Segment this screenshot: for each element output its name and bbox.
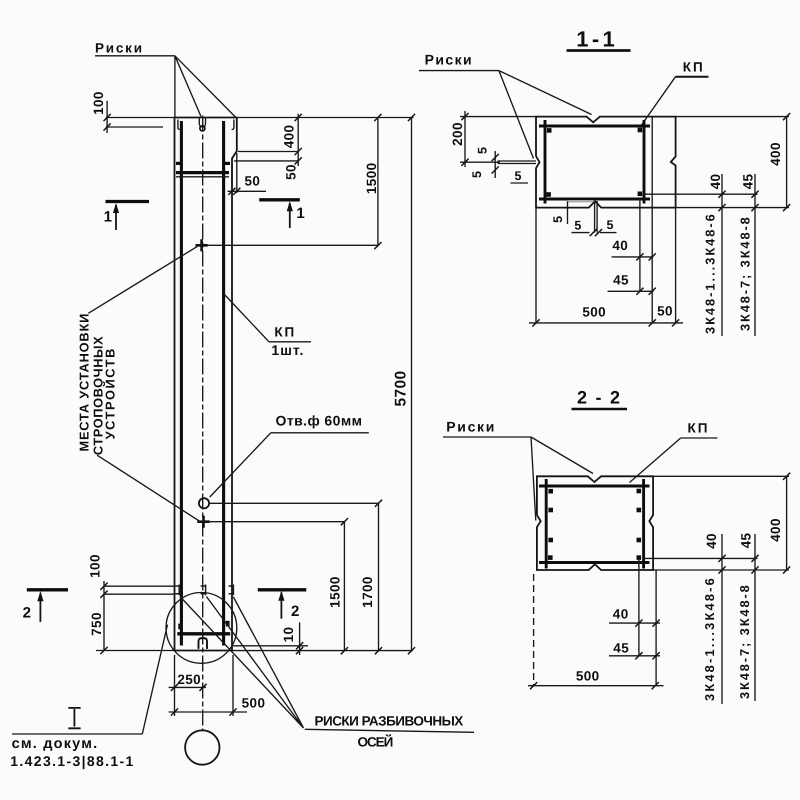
svg-text:2 - 2: 2 - 2 xyxy=(577,388,620,408)
svg-text:500: 500 xyxy=(582,305,606,320)
svg-text:КП: КП xyxy=(683,60,705,75)
svg-text:250: 250 xyxy=(177,672,201,687)
svg-text:5700: 5700 xyxy=(392,370,409,406)
svg-text:45: 45 xyxy=(739,533,754,549)
svg-text:5: 5 xyxy=(574,219,581,233)
svg-text:50: 50 xyxy=(657,304,673,319)
svg-text:5: 5 xyxy=(551,216,565,223)
svg-text:5: 5 xyxy=(607,218,614,232)
svg-text:5: 5 xyxy=(515,169,522,183)
svg-text:750: 750 xyxy=(89,612,104,636)
svg-text:1700: 1700 xyxy=(360,576,375,608)
svg-text:45: 45 xyxy=(613,640,629,655)
svg-text:50: 50 xyxy=(284,164,299,180)
svg-text:400: 400 xyxy=(282,125,297,149)
svg-text:100: 100 xyxy=(88,554,103,578)
svg-text:Риски: Риски xyxy=(425,52,472,68)
svg-text:УСТРОЙСТВ: УСТРОЙСТВ xyxy=(103,348,118,439)
svg-text:РИСКИ РАЗБИВОЧНЫХ: РИСКИ РАЗБИВОЧНЫХ xyxy=(315,714,465,729)
svg-text:Риски: Риски xyxy=(95,41,142,56)
svg-text:МЕСТА УСТАНОВКИ: МЕСТА УСТАНОВКИ xyxy=(77,314,92,452)
svg-text:2: 2 xyxy=(291,603,299,620)
svg-text:3К48-1...3К48-6: 3К48-1...3К48-6 xyxy=(703,214,718,334)
svg-text:КП: КП xyxy=(688,421,710,436)
svg-text:50: 50 xyxy=(244,173,260,188)
svg-text:400: 400 xyxy=(768,518,783,542)
svg-text:1500: 1500 xyxy=(328,576,343,608)
svg-text:40: 40 xyxy=(708,174,723,190)
svg-text:1шт.: 1шт. xyxy=(271,342,303,358)
svg-text:КП: КП xyxy=(274,325,296,340)
svg-text:40: 40 xyxy=(612,238,628,253)
svg-text:ОСЕЙ: ОСЕЙ xyxy=(358,734,395,750)
svg-text:500: 500 xyxy=(576,669,600,684)
svg-text:100: 100 xyxy=(91,91,106,115)
svg-text:40: 40 xyxy=(704,533,719,549)
svg-text:5: 5 xyxy=(475,147,489,154)
svg-text:3К48-1...3К48-6: 3К48-1...3К48-6 xyxy=(702,578,717,701)
svg-text:Отв.ф 60мм: Отв.ф 60мм xyxy=(276,413,363,429)
svg-text:см. докум.: см. докум. xyxy=(12,736,99,752)
svg-text:500: 500 xyxy=(242,696,266,711)
svg-text:45: 45 xyxy=(613,273,629,288)
svg-text:200: 200 xyxy=(450,122,465,146)
svg-text:400: 400 xyxy=(768,142,783,166)
svg-text:5: 5 xyxy=(470,171,484,178)
svg-text:2: 2 xyxy=(23,605,31,622)
svg-text:1: 1 xyxy=(104,209,112,226)
svg-text:Риски: Риски xyxy=(446,419,494,435)
svg-text:10: 10 xyxy=(281,627,296,643)
svg-text:1500: 1500 xyxy=(364,162,379,194)
svg-text:1: 1 xyxy=(296,205,304,222)
svg-text:40: 40 xyxy=(613,607,629,622)
svg-text:1 - 1: 1 - 1 xyxy=(576,27,615,52)
svg-text:1.423.1-3|88.1-1: 1.423.1-3|88.1-1 xyxy=(10,753,133,770)
svg-text:45: 45 xyxy=(741,174,756,190)
